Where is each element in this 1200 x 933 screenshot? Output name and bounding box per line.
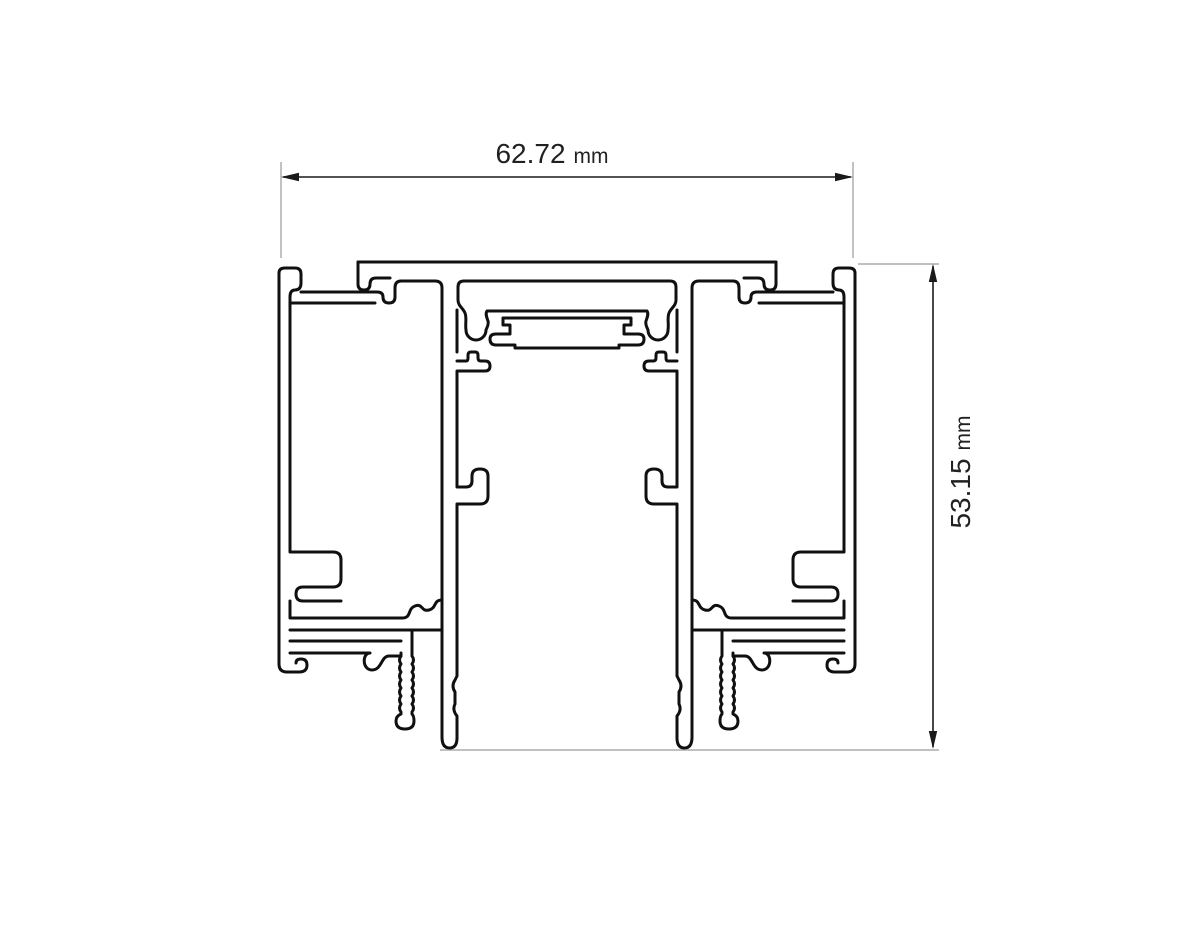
wall-tooth (644, 352, 677, 371)
height-dimension-label: 53.15mm (945, 415, 976, 528)
height-arrow-top (929, 264, 937, 282)
track-plate (490, 318, 644, 348)
channel-leg (442, 372, 488, 748)
channel-leg (646, 372, 692, 748)
drawing-canvas: 62.72mm 53.15mm (0, 0, 1200, 933)
top-plate-end-finger (744, 262, 776, 290)
profile-left-half (279, 262, 490, 748)
top-plate-end-finger (358, 262, 390, 290)
profile-drawing: 62.72mm 53.15mm (0, 0, 1200, 933)
wall-tooth (457, 352, 490, 371)
screw-boss (720, 630, 738, 729)
bottom-edge-hook (827, 659, 847, 672)
height-dimension: 53.15mm (440, 264, 976, 750)
outer-wall-outline (793, 268, 855, 672)
outer-wall-outline (279, 268, 341, 672)
width-dimension-label: 62.72mm (495, 138, 608, 169)
shelf-top-squiggle (692, 600, 844, 618)
screw-boss (396, 630, 414, 729)
bottom-edge-hook (287, 659, 307, 672)
height-arrow-bottom (929, 731, 937, 749)
profile-center (358, 262, 776, 348)
recess-outline (458, 281, 676, 340)
width-dimension: 62.72mm (281, 138, 853, 258)
shelf-top-squiggle (290, 600, 442, 618)
width-arrow-left (281, 173, 299, 181)
profile-right-half (644, 262, 855, 748)
width-arrow-right (835, 173, 853, 181)
